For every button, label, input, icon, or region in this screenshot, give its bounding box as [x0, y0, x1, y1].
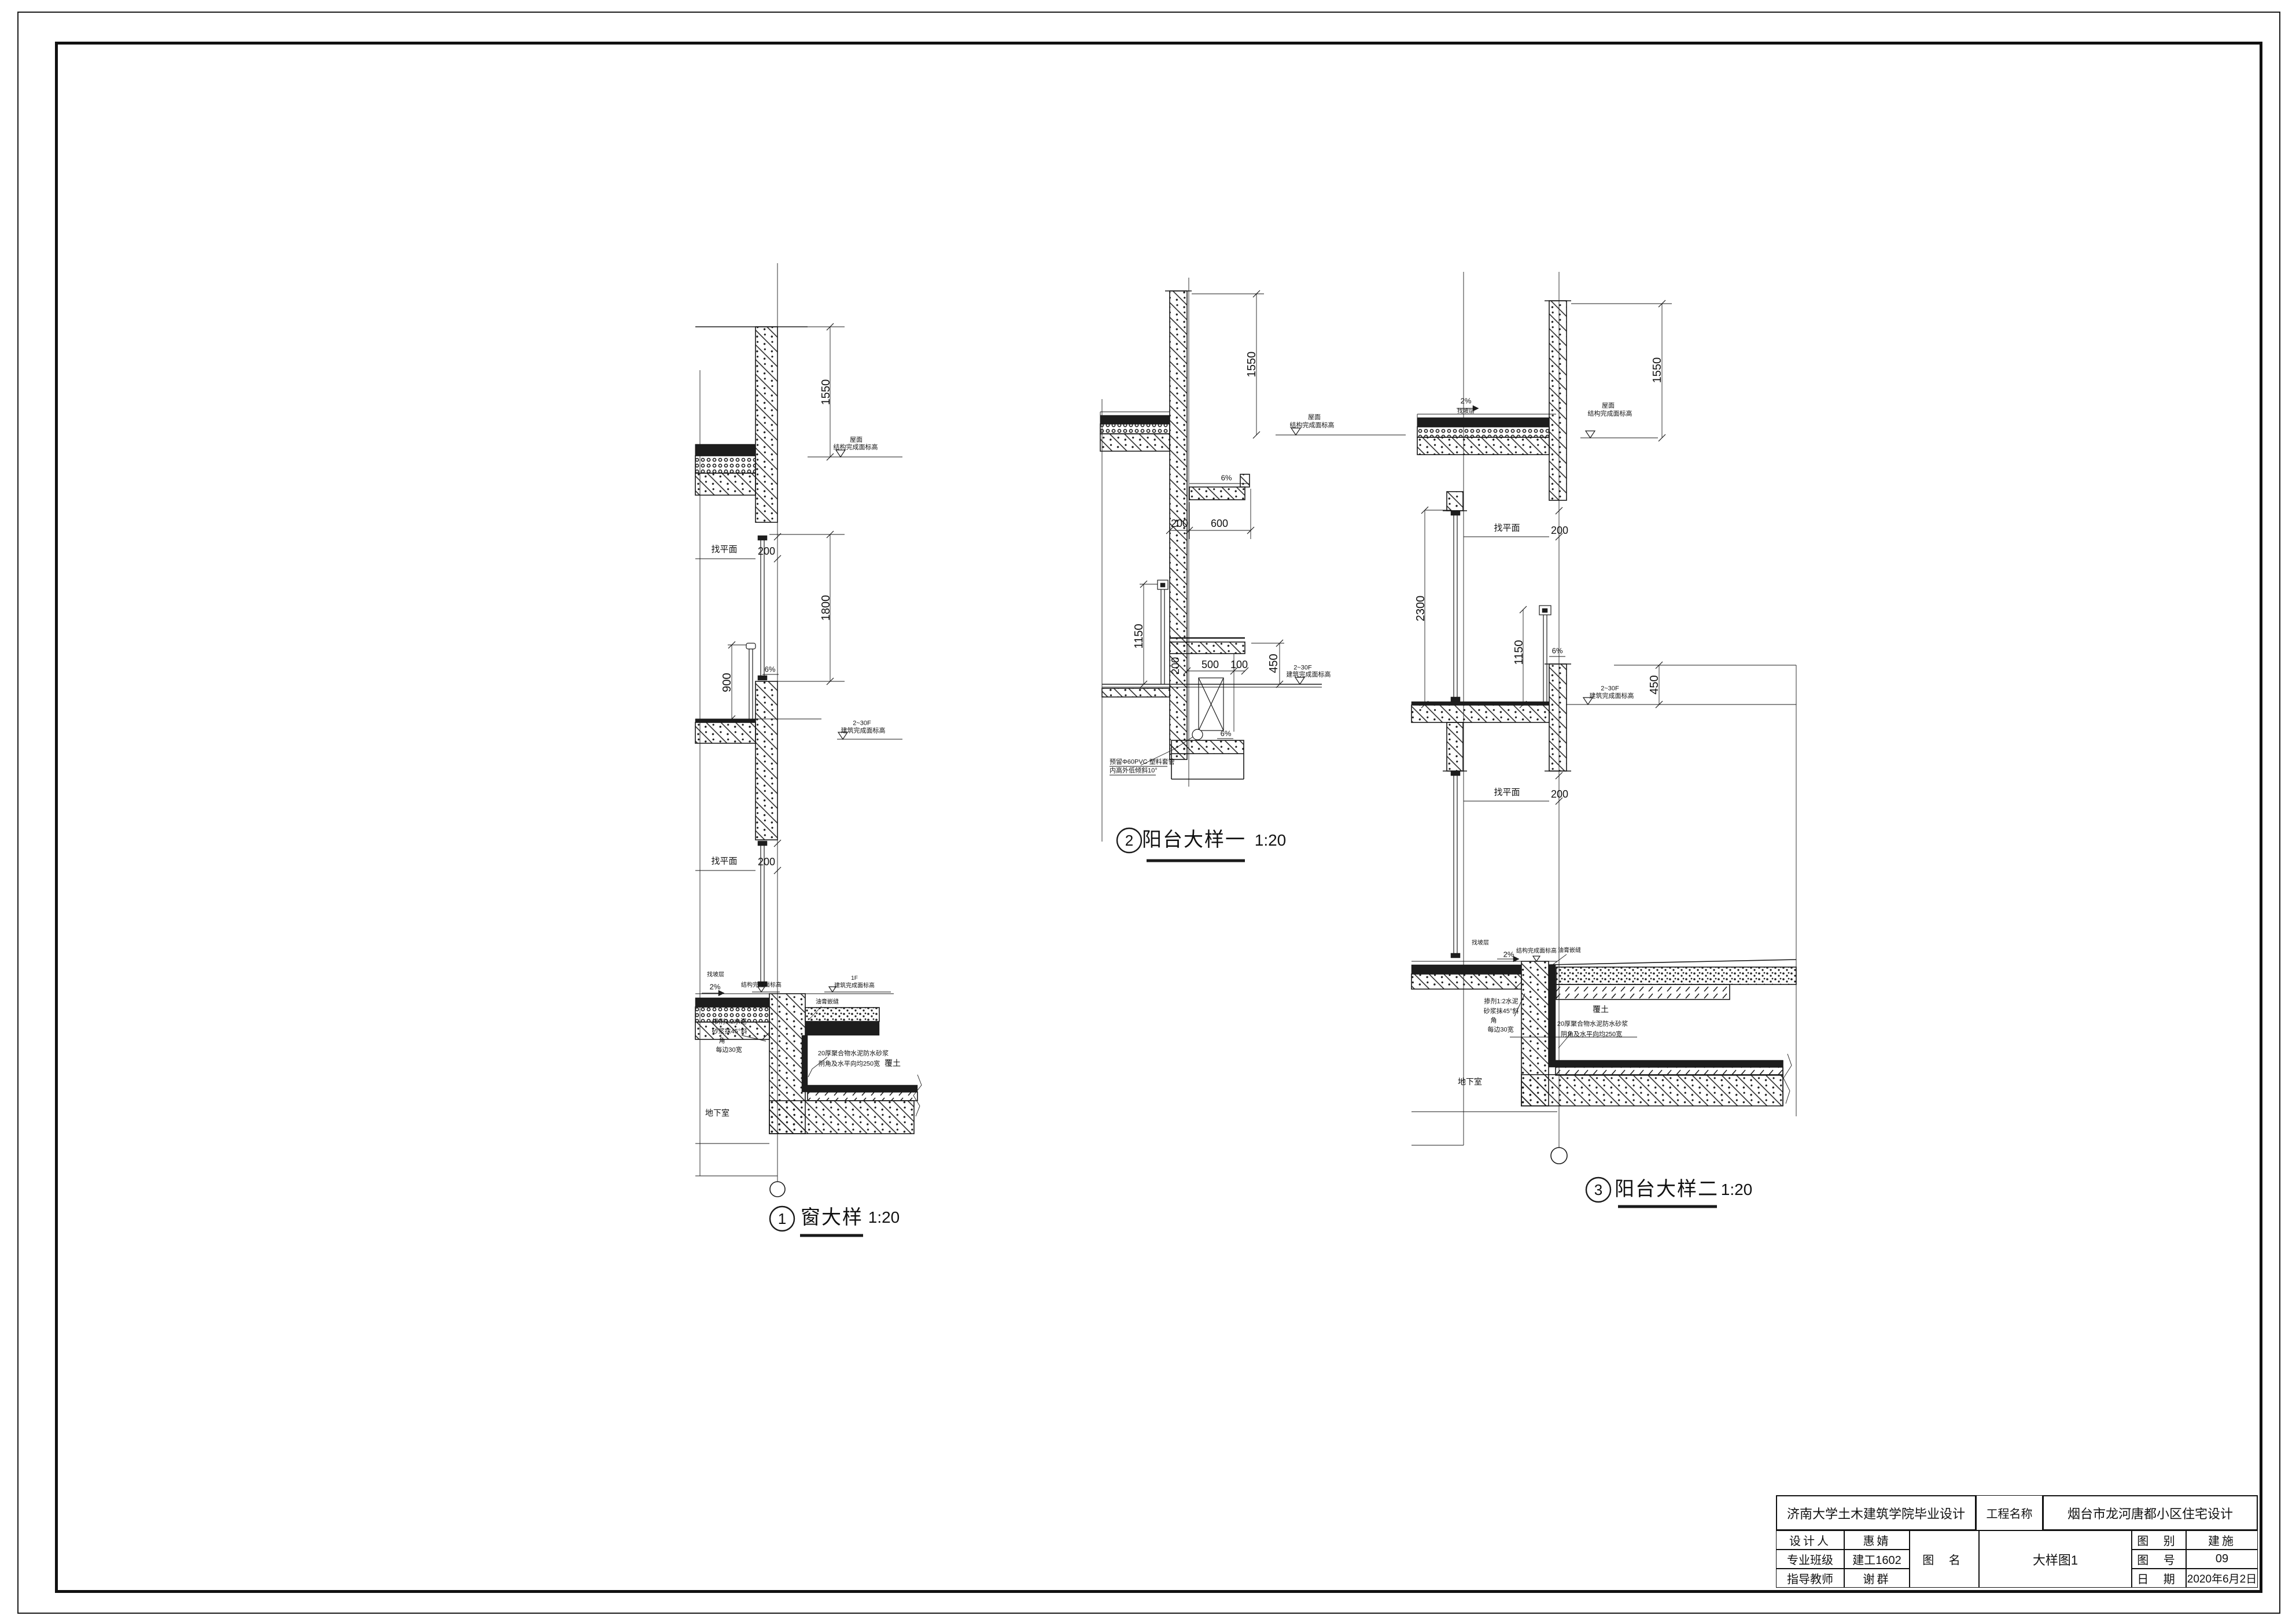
d1-detail-number: 1 [778, 1211, 786, 1226]
d1-dim-window: 1800 [820, 595, 832, 621]
d1-roof-level-label: 屋面 [850, 437, 863, 444]
d2-dim-canopy: 600 [1211, 518, 1228, 529]
date-label: 日 期 [2132, 1569, 2186, 1588]
d2-slope-balcony: 6% [1221, 730, 1232, 737]
project-name: 烟台市龙河唐都小区住宅设计 [2043, 1495, 2258, 1530]
d1-mortar-note-1: 掺剂1:2水泥 [712, 1019, 746, 1026]
d2-dim-parapet: 1550 [1246, 352, 1258, 378]
d1-leveling-label-1: 找平面 [711, 545, 737, 554]
d2-slope-canopy: 6% [1221, 474, 1232, 482]
d2-roof-level-label: 屋面 [1308, 415, 1321, 421]
project-label: 工程名称 [1976, 1495, 2043, 1530]
number-value: 09 [2186, 1550, 2258, 1569]
class-label: 专业班级 [1776, 1550, 1844, 1569]
d3-leveling-label-2: 找平面 [1494, 788, 1520, 797]
class-value: 建工1602 [1844, 1550, 1910, 1569]
d3-slope-terrace: 2% [1503, 951, 1514, 958]
d3-soil-label: 覆土 [1593, 1005, 1609, 1013]
d2-detail-scale: 1:20 [1255, 832, 1287, 849]
number-label: 图 号 [2132, 1550, 2186, 1569]
d1-1f-label: 1F [851, 976, 858, 982]
title-block: 济南大学土木建筑学院毕业设计 工程名称 烟台市龙河唐都小区住宅设计 设计人 惠婧… [1776, 1495, 2258, 1588]
d1-floor-level-label: 2~30F [853, 721, 871, 727]
d2-detail-number: 2 [1125, 833, 1133, 848]
d3-waterproof-note-2: 阴角及水平向均250宽 [1561, 1032, 1622, 1038]
drawing-sheet: 屋面 结构完成面标高 1550 找平面 200 1800 900 6% 2~30… [0, 0, 2296, 1623]
d1-basement-label: 地下室 [705, 1109, 729, 1117]
drawing-name-label: 图 名 [1910, 1530, 1979, 1588]
d1-dim-head: 200 [758, 546, 775, 556]
d3-roof-level-label: 屋面 [1602, 403, 1615, 410]
d1-detail-title: 窗大样 [801, 1208, 863, 1227]
d3-terrace-level-note: 结构完成面标高 [1516, 949, 1557, 954]
d1-soil-label: 覆土 [885, 1059, 901, 1067]
d2-dim-rail: 1150 [1133, 624, 1145, 648]
teacher-label: 指导教师 [1776, 1569, 1844, 1588]
d1-slope-layer-label: 找坡层 [707, 972, 724, 978]
d2-dim-wall2: 200 [1170, 657, 1181, 674]
date-value: 2020年6月2日 [2186, 1569, 2258, 1588]
d3-dim-head2: 200 [1551, 789, 1568, 799]
d3-dim-door: 2300 [1415, 596, 1427, 622]
d1-detail-scale: 1:20 [868, 1209, 900, 1226]
d1-1f-level-note: 建筑完成面标高 [834, 983, 875, 989]
d3-dim-upturn: 450 [1649, 675, 1660, 694]
d3-detail-title: 阳台大样二 [1615, 1179, 1719, 1199]
d2-dim-upstand: 100 [1230, 659, 1248, 670]
d1-slope-terrace: 2% [710, 983, 721, 991]
d1-dim-parapet: 1550 [820, 379, 832, 405]
d1-waterproof-note-1: 20厚聚合物水泥防水砂浆 [818, 1051, 889, 1057]
detail-1-drawing [695, 263, 922, 1235]
d3-dim-parapet: 1550 [1652, 357, 1663, 383]
d2-floor-level-label: 2~30F [1293, 665, 1312, 672]
d3-slope-balcony: 6% [1552, 647, 1563, 655]
d2-pvc-note-1: 预留Φ60PVC 塑料套管 [1110, 759, 1175, 766]
d3-dim-head: 200 [1551, 525, 1568, 536]
d3-slope-roof: 2% [1461, 397, 1472, 405]
d3-detail-number: 3 [1594, 1182, 1602, 1197]
d3-floor-level-note: 建筑完成面标高 [1590, 694, 1634, 700]
type-label: 图 别 [2132, 1530, 2186, 1550]
d3-roof-level-note: 结构完成面标高 [1588, 411, 1632, 418]
cad-linework [0, 0, 2296, 1623]
designer-label: 设计人 [1776, 1530, 1844, 1550]
d1-mortar-note-4: 每边30宽 [716, 1047, 742, 1054]
d3-leveling-label-1: 找平面 [1494, 524, 1520, 533]
d3-mortar-note-2: 砂浆抹45°斜 [1484, 1009, 1519, 1015]
d1-dim-rail: 900 [721, 673, 733, 692]
d2-dim-clear: 500 [1202, 659, 1219, 670]
d3-slope-layer-label: 找坡层 [1472, 940, 1489, 946]
drawing-name: 大样图1 [1979, 1530, 2132, 1588]
d2-dim-wall: 200 [1171, 518, 1188, 529]
d3-mortar-note-1: 掺剂1:2水泥 [1484, 999, 1518, 1005]
d1-dim-head2: 200 [758, 857, 775, 867]
d2-roof-level-note: 结构完成面标高 [1290, 423, 1335, 429]
d2-pvc-note-2: 内高外低倾斜10° [1110, 768, 1158, 774]
d1-waterproof-note-2: 阴角及水平向均250宽 [819, 1061, 880, 1068]
d3-dim-rail: 1150 [1513, 640, 1525, 665]
d3-mortar-note-4: 每边30宽 [1487, 1027, 1513, 1034]
d2-dim-upturn: 450 [1268, 654, 1280, 673]
d1-sealant-label: 油膏嵌缝 [816, 999, 839, 1005]
d1-roof-level-note: 结构完成面标高 [834, 445, 878, 451]
d1-floor-level-note: 建筑完成面标高 [841, 728, 886, 735]
d1-mortar-note-2: 砂浆抹45°斜 [712, 1029, 747, 1035]
d2-floor-level-note: 建筑完成面标高 [1287, 672, 1331, 678]
d3-floor-level-label: 2~30F [1601, 686, 1619, 692]
d3-waterproof-note-1: 20厚聚合物水泥防水砂浆 [1557, 1021, 1628, 1028]
designer-name: 惠婧 [1844, 1530, 1910, 1550]
d3-mortar-note-3: 角 [1491, 1018, 1497, 1024]
d2-detail-title: 阳台大样一 [1142, 830, 1246, 850]
school-name: 济南大学土木建筑学院毕业设计 [1776, 1495, 1976, 1530]
type-value: 建施 [2186, 1530, 2258, 1550]
d1-mortar-note-3: 角 [719, 1038, 725, 1045]
d3-basement-label: 地下室 [1458, 1078, 1482, 1086]
d3-slope-layer-top: 找坡层 [1457, 409, 1475, 415]
d1-slope-sill: 6% [765, 666, 776, 673]
teacher-name: 谢群 [1844, 1569, 1910, 1588]
d3-detail-scale: 1:20 [1721, 1182, 1753, 1198]
d1-leveling-label-2: 找平面 [711, 857, 737, 866]
d3-sealant-label: 油膏嵌缝 [1558, 948, 1581, 954]
d1-terrace-level-note: 结构完成面标高 [741, 983, 782, 988]
